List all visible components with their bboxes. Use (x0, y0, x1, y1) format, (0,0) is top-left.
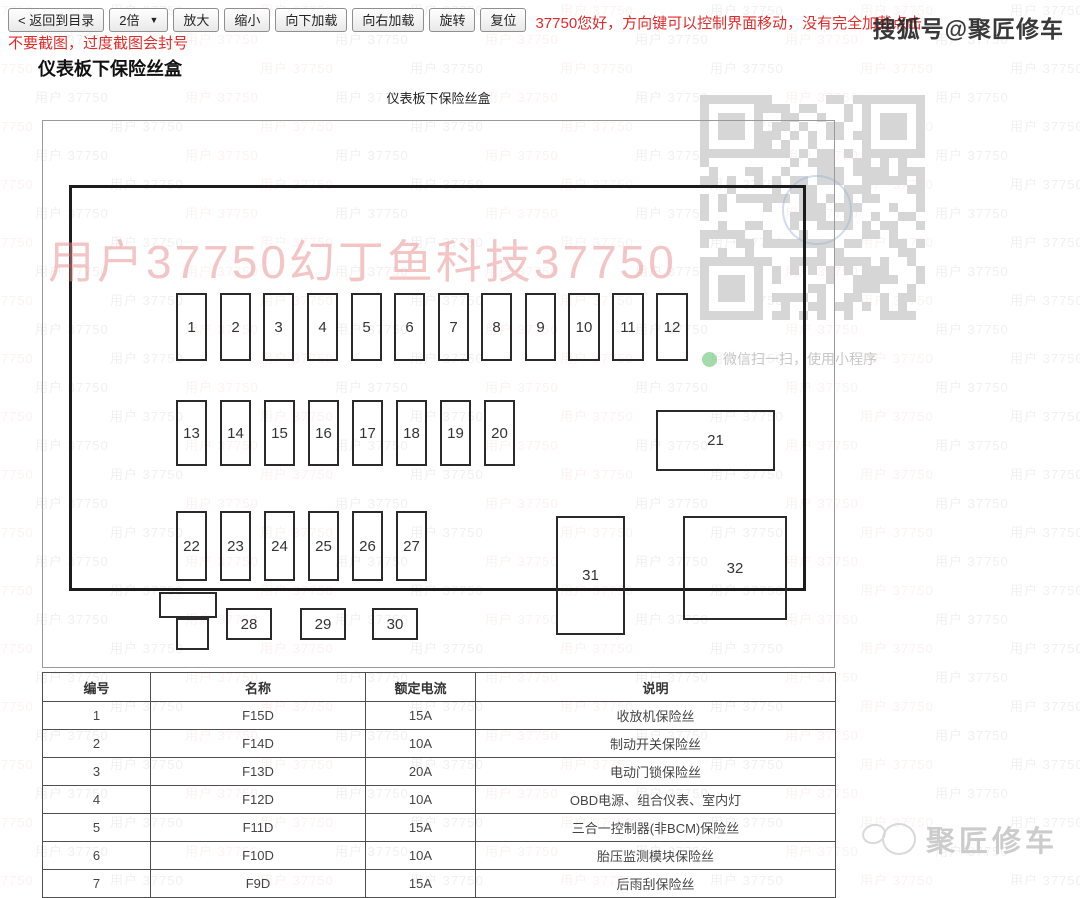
qr-module (871, 266, 880, 275)
watermark-tile: 用户 37750 (1010, 232, 1080, 251)
table-cell: 20A (366, 758, 476, 786)
fuse-10: 10 (568, 293, 600, 361)
watermark-tile: 用户 37750 (935, 609, 1009, 628)
qr-module (835, 131, 844, 140)
watermark-tile: 用户 37750 (0, 696, 34, 715)
toolbar: < 返回到目录 2倍 ▼ 放大缩小向下加载向右加载旋转复位 37750您好，方向… (8, 8, 922, 33)
qr-module (844, 257, 853, 266)
watermark-tile: 用户 37750 (860, 696, 934, 715)
qr-module (862, 284, 871, 293)
qr-module (853, 239, 862, 248)
watermark-tile: 用户 37750 (1010, 290, 1080, 309)
zoom-level-value: 2倍 (119, 12, 139, 29)
fuse-27: 27 (396, 511, 427, 581)
fusebox-outline: 1234567891011121314151617181920212223242… (69, 185, 806, 591)
fuse-13: 13 (176, 400, 207, 466)
fuse-14: 14 (220, 400, 251, 466)
table-cell: 7 (43, 870, 151, 898)
qr-module (844, 104, 853, 113)
fuse-9: 9 (525, 293, 556, 361)
fuse-15: 15 (264, 400, 295, 466)
fuse-31: 31 (556, 516, 625, 635)
qr-module (871, 284, 880, 293)
watermark-tile: 用户 37750 (0, 522, 34, 541)
table-row: 4F12D10AOBD电源、组合仪表、室内灯 (43, 786, 836, 814)
table-cell: 10A (366, 842, 476, 870)
qr-module (898, 302, 907, 311)
qr-module (880, 293, 889, 302)
qr-module (880, 311, 889, 320)
fuse-unlabeled (159, 592, 217, 618)
qr-module (853, 293, 862, 302)
logo-face-icon (882, 823, 916, 855)
zoom-level-select[interactable]: 2倍 ▼ (109, 8, 168, 32)
qr-module (880, 257, 889, 266)
qr-module (844, 311, 853, 320)
table-cell: 1 (43, 702, 151, 730)
watermark-tile: 用户 37750 (0, 638, 34, 657)
table-row: 3F13D20A电动门锁保险丝 (43, 758, 836, 786)
watermark-tile: 用户 37750 (1010, 116, 1080, 135)
qr-module (916, 194, 925, 203)
toolbar-button-5[interactable]: 复位 (480, 8, 526, 32)
watermark-tile: 用户 37750 (260, 58, 334, 77)
qr-module (862, 275, 871, 284)
table-row: 5F11D15A三合一控制器(非BCM)保险丝 (43, 814, 836, 842)
table-cell: 15A (366, 814, 476, 842)
fuse-1: 1 (176, 293, 207, 361)
qr-module (880, 275, 889, 284)
table-cell: OBD电源、组合仪表、室内灯 (476, 786, 836, 814)
toolbar-button-2[interactable]: 向下加载 (275, 8, 347, 32)
fuse-28: 28 (226, 608, 272, 640)
table-cell: 2 (43, 730, 151, 758)
fuse-7: 7 (438, 293, 469, 361)
watermark-tile: 用户 37750 (710, 58, 784, 77)
table-cell: F10D (151, 842, 366, 870)
watermark-tile: 用户 37750 (935, 783, 1009, 802)
qr-module (916, 203, 925, 212)
watermark-tile: 用户 37750 (1010, 580, 1080, 599)
fuse-3: 3 (263, 293, 294, 361)
qr-module (916, 275, 925, 284)
qr-module (853, 95, 862, 104)
fuse-22: 22 (176, 511, 207, 581)
watermark-tile: 用户 37750 (860, 406, 934, 425)
table-cell: F11D (151, 814, 366, 842)
qr-module (853, 284, 862, 293)
watermark-tile: 用户 37750 (0, 812, 34, 831)
qr-module (835, 248, 844, 257)
table-cell: 10A (366, 786, 476, 814)
qr-module (871, 194, 880, 203)
watermark-tile: 用户 37750 (860, 464, 934, 483)
qr-module (907, 284, 916, 293)
column-header: 编号 (43, 673, 151, 702)
watermark-tile: 用户 37750 (1010, 174, 1080, 193)
fuse-8: 8 (481, 293, 512, 361)
back-to-toc-button[interactable]: < 返回到目录 (8, 8, 104, 32)
qr-module (862, 257, 871, 266)
qr-module (835, 95, 844, 104)
table-cell: 5 (43, 814, 151, 842)
qr-module (853, 131, 862, 140)
table-cell: 电动门锁保险丝 (476, 758, 836, 786)
fuse-12: 12 (656, 293, 688, 361)
qr-module (916, 266, 925, 275)
fuse-24: 24 (264, 511, 295, 581)
qr-module (916, 239, 925, 248)
table-row: 6F10D10A胎压监测模块保险丝 (43, 842, 836, 870)
fuse-25: 25 (308, 511, 339, 581)
qr-module (844, 293, 853, 302)
watermark-tile: 用户 37750 (860, 870, 934, 885)
qr-module (889, 311, 898, 320)
sohu-account-watermark: 搜狐号@聚匠修车 (873, 10, 1064, 44)
table-cell: F14D (151, 730, 366, 758)
fuse-21: 21 (656, 410, 775, 471)
qr-module (898, 158, 907, 167)
watermark-tile: 用户 37750 (860, 58, 934, 77)
qr-module (853, 275, 862, 284)
fuse-table-header-row: 编号名称额定电流说明 (43, 673, 836, 702)
corner-brand-logo: 聚匠修车 (862, 818, 1058, 860)
session-notice-text: 37750您好，方向键可以控制界面移动，没有完全加载点击 (535, 8, 922, 33)
qr-module (916, 185, 925, 194)
fuse-19: 19 (440, 400, 471, 466)
qr-module (862, 176, 871, 185)
fuse-unlabeled (176, 618, 209, 650)
table-cell: 3 (43, 758, 151, 786)
watermark-tile: 用户 37750 (1010, 522, 1080, 541)
watermark-tile: 用户 37750 (935, 725, 1009, 744)
table-row: 2F14D10A制动开关保险丝 (43, 730, 836, 758)
fuse-16: 16 (308, 400, 339, 466)
fuse-26: 26 (352, 511, 383, 581)
qr-module (853, 185, 862, 194)
table-row: 7F9D15A后雨刮保险丝 (43, 870, 836, 898)
watermark-tile: 用户 37750 (1010, 464, 1080, 483)
qr-module (862, 185, 871, 194)
watermark-tile: 用户 37750 (0, 116, 34, 135)
watermark-tile: 用户 37750 (560, 58, 634, 77)
qr-module (862, 230, 871, 239)
qr-module (907, 167, 916, 176)
qr-module (898, 239, 907, 248)
watermark-tile: 用户 37750 (0, 232, 34, 251)
qr-module (871, 275, 880, 284)
fuse-23: 23 (220, 511, 251, 581)
watermark-tile: 用户 37750 (0, 580, 34, 599)
qr-module (862, 194, 871, 203)
fuse-17: 17 (352, 400, 383, 466)
qr-module (844, 239, 853, 248)
qr-module (907, 248, 916, 257)
table-cell: 收放机保险丝 (476, 702, 836, 730)
diagram-caption: 仪表板下保险丝盒 (42, 88, 835, 107)
qr-module (862, 266, 871, 275)
table-cell: 后雨刮保险丝 (476, 870, 836, 898)
qr-module (844, 266, 853, 275)
table-cell: 10A (366, 730, 476, 758)
watermark-tile: 用户 37750 (935, 493, 1009, 512)
qr-module (880, 266, 889, 275)
watermark-tile: 用户 37750 (860, 638, 934, 657)
table-cell: 6 (43, 842, 151, 870)
watermark-tile: 用户 37750 (0, 754, 34, 773)
qr-module (880, 302, 889, 311)
page-title: 仪表板下保险丝盒 (38, 55, 182, 81)
qr-module (844, 113, 853, 122)
toolbar-button-4[interactable]: 旋转 (429, 8, 475, 32)
watermark-tile: 用户 37750 (935, 667, 1009, 686)
watermark-tile: 用户 37750 (0, 58, 34, 77)
chevron-down-icon: ▼ (149, 12, 158, 29)
watermark-tile: 用户 37750 (935, 87, 1009, 106)
watermark-tile: 用户 37750 (935, 551, 1009, 570)
qr-module (889, 239, 898, 248)
toolbar-button-3[interactable]: 向右加载 (352, 8, 424, 32)
fuse-32: 32 (683, 516, 787, 620)
qr-module (880, 221, 889, 230)
qr-module (853, 257, 862, 266)
qr-module (880, 167, 889, 176)
qr-module (880, 176, 889, 185)
fuse-4: 4 (307, 293, 338, 361)
qr-finder (880, 113, 907, 140)
fuse-20: 20 (484, 400, 515, 466)
qr-module (916, 176, 925, 185)
qr-module (889, 221, 898, 230)
qr-module (835, 257, 844, 266)
table-row: 1F15D15A收放机保险丝 (43, 702, 836, 730)
qr-module (907, 293, 916, 302)
screenshot-warning-text: 不要截图，过度截图会封号 (8, 32, 188, 53)
table-cell: 4 (43, 786, 151, 814)
table-cell: 胎压监测模块保险丝 (476, 842, 836, 870)
watermark-tile: 用户 37750 (935, 261, 1009, 280)
watermark-tile: 用户 37750 (935, 377, 1009, 396)
watermark-tile: 用户 37750 (860, 522, 934, 541)
table-cell: 三合一控制器(非BCM)保险丝 (476, 814, 836, 842)
watermark-tile: 用户 37750 (935, 145, 1009, 164)
qr-module (898, 248, 907, 257)
watermark-tile: 用户 37750 (0, 348, 34, 367)
column-header: 说明 (476, 673, 836, 702)
watermark-tile: 用户 37750 (1010, 348, 1080, 367)
qr-module (907, 185, 916, 194)
fuse-2: 2 (220, 293, 251, 361)
qr-module (889, 176, 898, 185)
qr-module (898, 311, 907, 320)
qr-module (898, 176, 907, 185)
qr-module (889, 230, 898, 239)
table-cell: F12D (151, 786, 366, 814)
column-header: 额定电流 (366, 673, 476, 702)
watermark-tile: 用户 37750 (1010, 696, 1080, 715)
watermark-tile: 用户 37750 (0, 464, 34, 483)
qr-module (898, 212, 907, 221)
qr-module (835, 302, 844, 311)
watermark-tile: 用户 37750 (1010, 58, 1080, 77)
table-cell: 15A (366, 870, 476, 898)
table-cell: F15D (151, 702, 366, 730)
fuse-5: 5 (351, 293, 382, 361)
qr-module (889, 275, 898, 284)
watermark-tile: 用户 37750 (0, 174, 34, 193)
toolbar-buttons: 放大缩小向下加载向右加载旋转复位 (173, 8, 526, 32)
qr-module (898, 293, 907, 302)
watermark-tile: 用户 37750 (0, 290, 34, 309)
watermark-tile: 用户 37750 (0, 870, 34, 885)
qr-module (871, 230, 880, 239)
qr-module (907, 311, 916, 320)
table-cell: F13D (151, 758, 366, 786)
toolbar-button-0[interactable]: 放大 (173, 8, 219, 32)
qr-module (862, 302, 871, 311)
fuse-6: 6 (394, 293, 425, 361)
fuse-18: 18 (396, 400, 427, 466)
watermark-tile: 用户 37750 (860, 580, 934, 599)
fuse-29: 29 (300, 608, 346, 640)
qr-module (916, 221, 925, 230)
watermark-tile: 用户 37750 (410, 58, 484, 77)
qr-module (889, 203, 898, 212)
diagram-frame: 1234567891011121314151617181920212223242… (42, 120, 835, 668)
qr-module (898, 167, 907, 176)
qr-module (844, 149, 853, 158)
fuse-table: 编号名称额定电流说明 1F15D15A收放机保险丝2F14D10A制动开关保险丝… (42, 672, 836, 898)
watermark-tile: 用户 37750 (935, 435, 1009, 454)
qr-module (853, 158, 862, 167)
qr-module (907, 257, 916, 266)
fuse-11: 11 (612, 293, 644, 361)
qr-module (862, 167, 871, 176)
table-cell: F9D (151, 870, 366, 898)
watermark-tile: 用户 37750 (1010, 870, 1080, 885)
qr-module (853, 167, 862, 176)
table-cell: 15A (366, 702, 476, 730)
column-header: 名称 (151, 673, 366, 702)
qr-module (862, 158, 871, 167)
watermark-tile: 用户 37750 (1010, 754, 1080, 773)
qr-module (835, 122, 844, 131)
qr-module (907, 212, 916, 221)
toolbar-button-1[interactable]: 缩小 (224, 8, 270, 32)
watermark-tile: 用户 37750 (0, 406, 34, 425)
qr-module (835, 167, 844, 176)
watermark-tile: 用户 37750 (860, 754, 934, 773)
watermark-tile: 用户 37750 (1010, 638, 1080, 657)
qr-module (916, 167, 925, 176)
table-cell: 制动开关保险丝 (476, 730, 836, 758)
qr-module (880, 158, 889, 167)
fuse-30: 30 (372, 608, 418, 640)
qr-module (853, 203, 862, 212)
qr-module (871, 167, 880, 176)
qr-module (844, 302, 853, 311)
corner-logo-text: 聚匠修车 (926, 818, 1058, 860)
watermark-tile: 用户 37750 (935, 203, 1009, 222)
watermark-tile: 用户 37750 (1010, 406, 1080, 425)
qr-module (862, 221, 871, 230)
qr-module (871, 176, 880, 185)
watermark-tile: 用户 37750 (935, 319, 1009, 338)
qr-module (871, 212, 880, 221)
